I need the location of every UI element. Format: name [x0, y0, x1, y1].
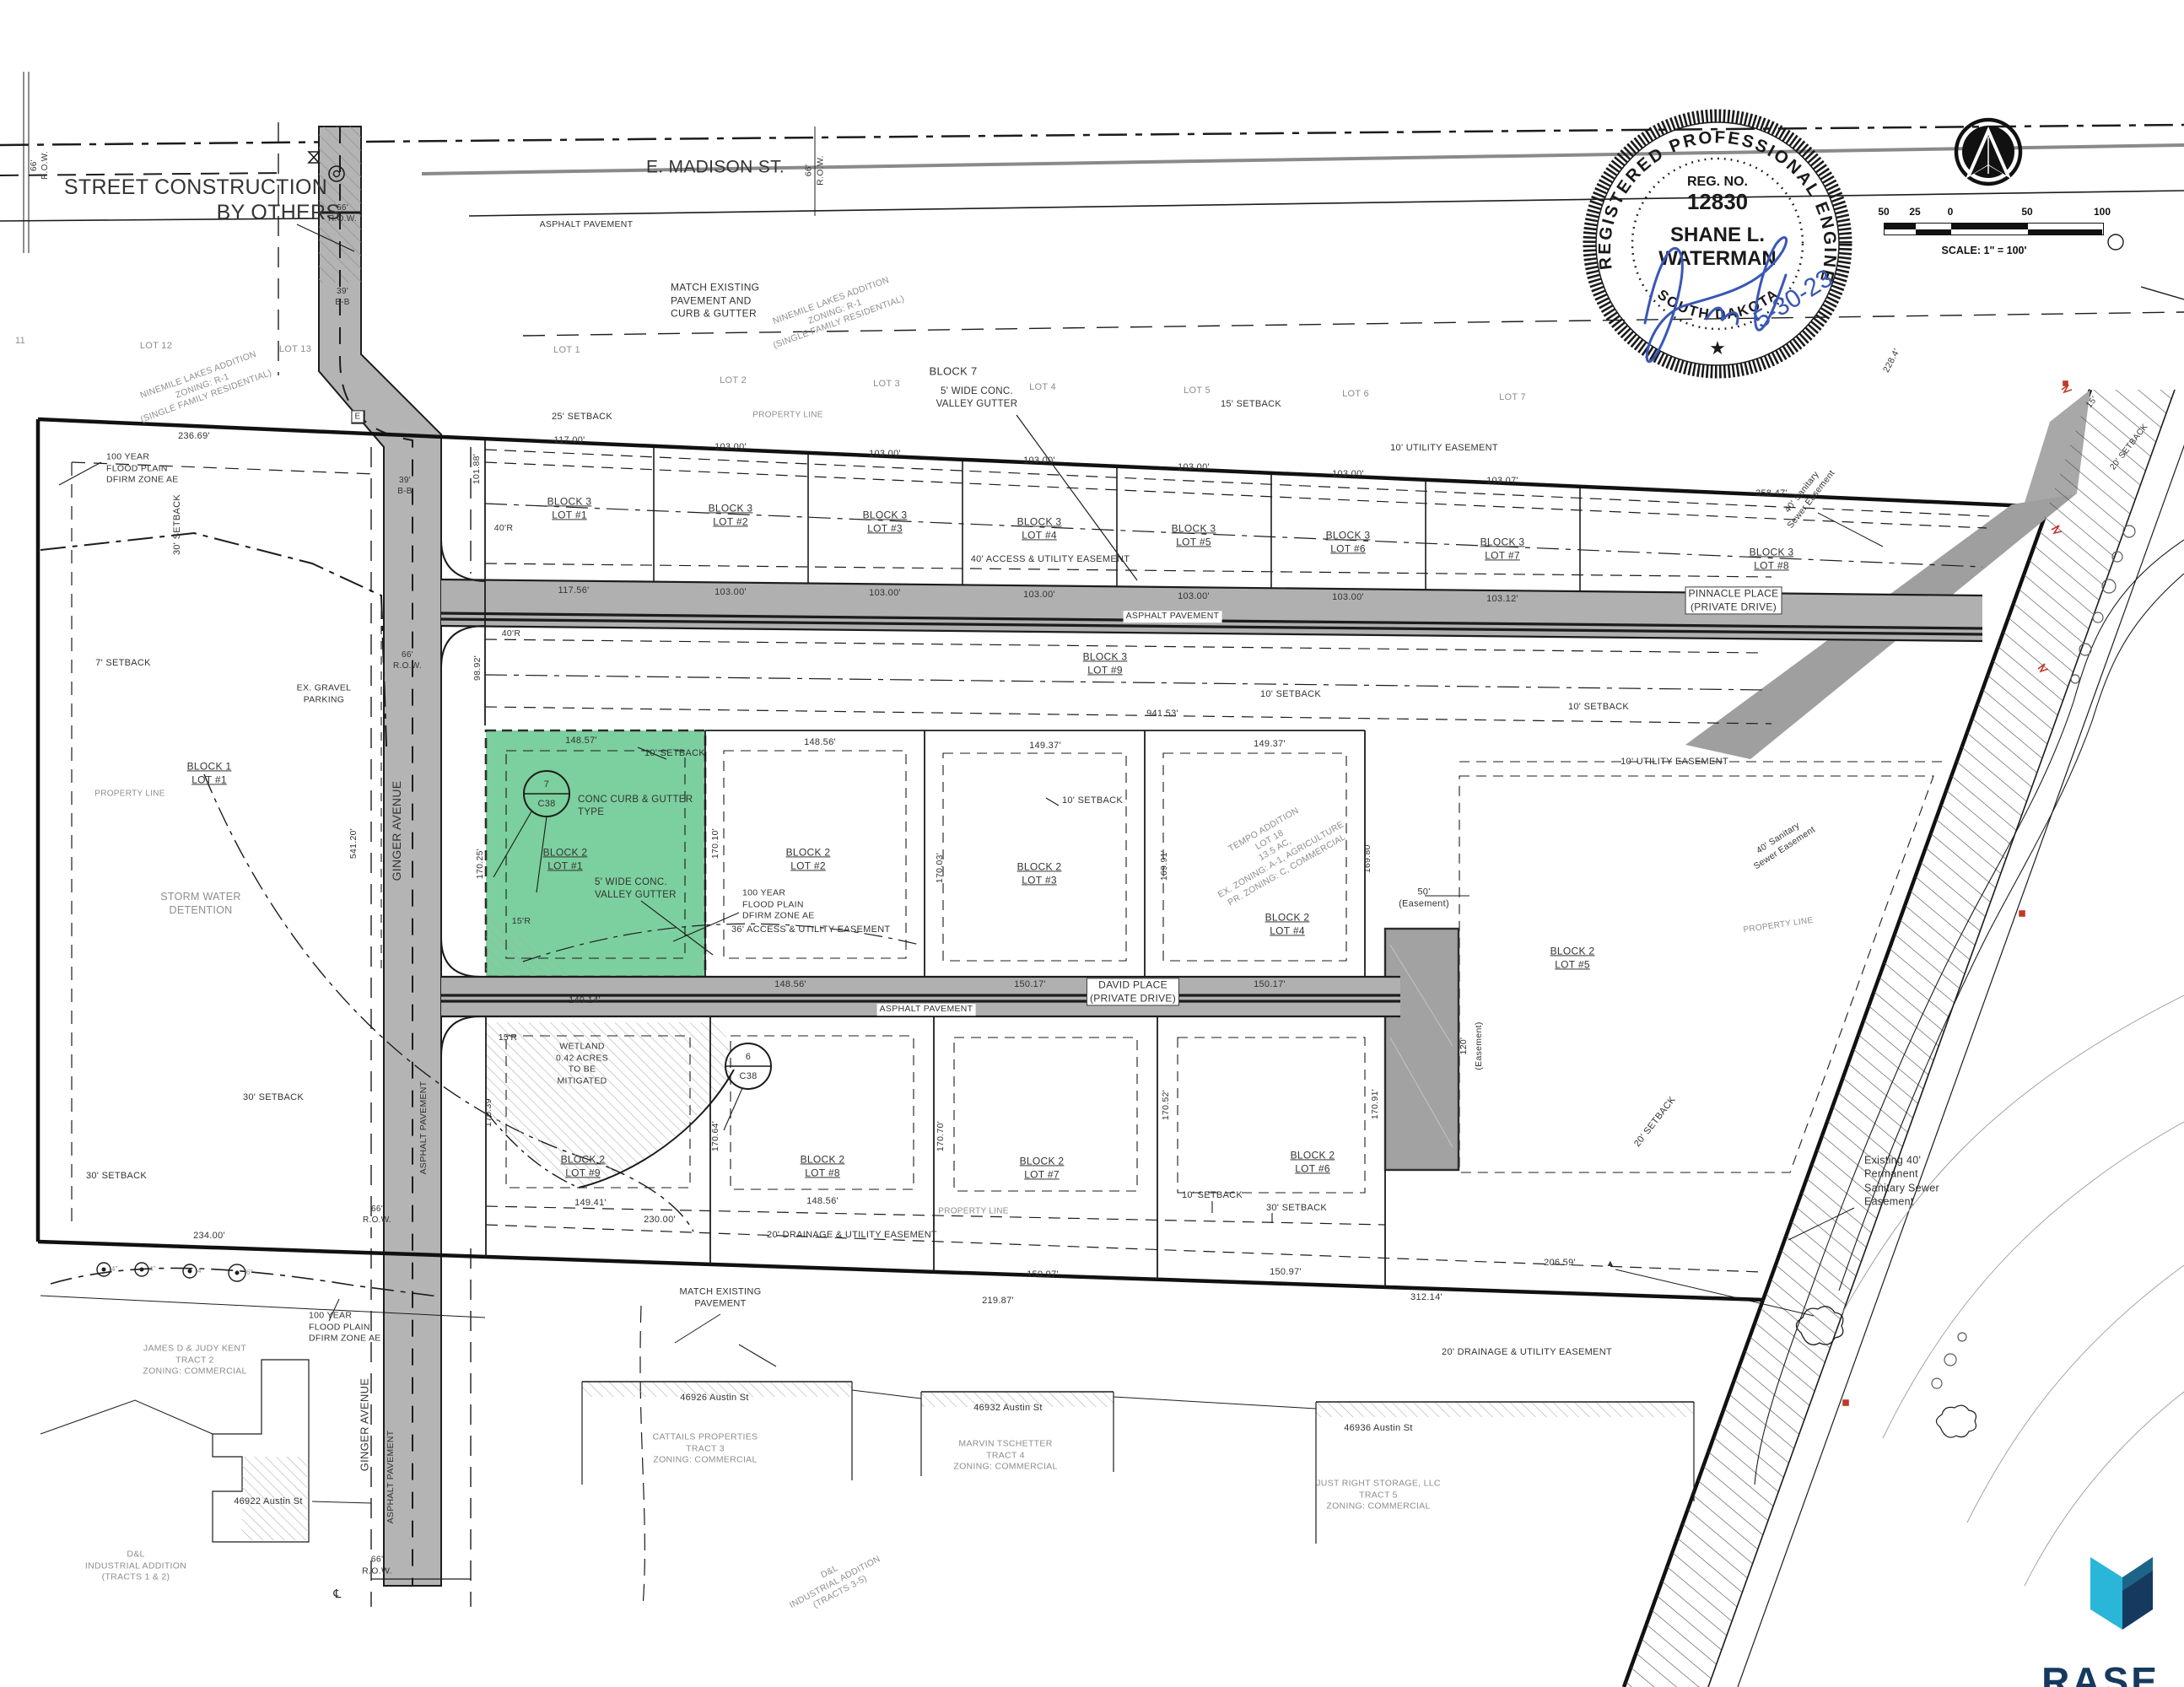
stamp-reg-label: REG. NO. [1687, 175, 1748, 189]
scale-label: SCALE: 1" = 100' [1942, 245, 2027, 256]
block3-lot-lines [485, 415, 1991, 725]
plat-boundary [38, 390, 2090, 1687]
scale-tick: 100 [2094, 206, 2111, 218]
rase-logo: RASE [2020, 1542, 2181, 1681]
pinnacle-place-road [441, 540, 1982, 668]
scale-tick: 0 [1948, 206, 1954, 218]
site-plan-canvas: REGISTERED PROFESSIONAL ENGINEER SOUTH D… [0, 0, 2184, 1687]
rase-logo-text: RASE [2041, 1658, 2160, 1687]
scale-tick: 50 [1878, 206, 1889, 218]
plan-linework [0, 0, 2184, 1687]
stamp-name-2: WATERMAN [1658, 247, 1777, 270]
scale-tick: 25 [1909, 206, 1920, 218]
ginger-avenue-road [278, 122, 471, 1607]
block2-lower-lots [486, 1016, 1761, 1287]
scale-bar-blocks [1884, 223, 2104, 235]
stamp-reg-no: 12830 [1687, 189, 1748, 214]
south-parcels [40, 1263, 1694, 1607]
scale-tick: 50 [2021, 206, 2032, 218]
rase-logo-icon [2020, 1542, 2181, 1643]
scale-bar: 50 25 0 50 100 SCALE: 1" = 100' [1869, 202, 2138, 266]
engineer-stamp: REGISTERED PROFESSIONAL ENGINEER SOUTH D… [1582, 108, 1853, 380]
stamp-name-1: SHANE L. [1670, 224, 1765, 246]
stamp-star: ★ [1709, 337, 1726, 358]
easement-block [1385, 896, 1469, 1170]
north-arrow-icon [1953, 116, 2025, 192]
